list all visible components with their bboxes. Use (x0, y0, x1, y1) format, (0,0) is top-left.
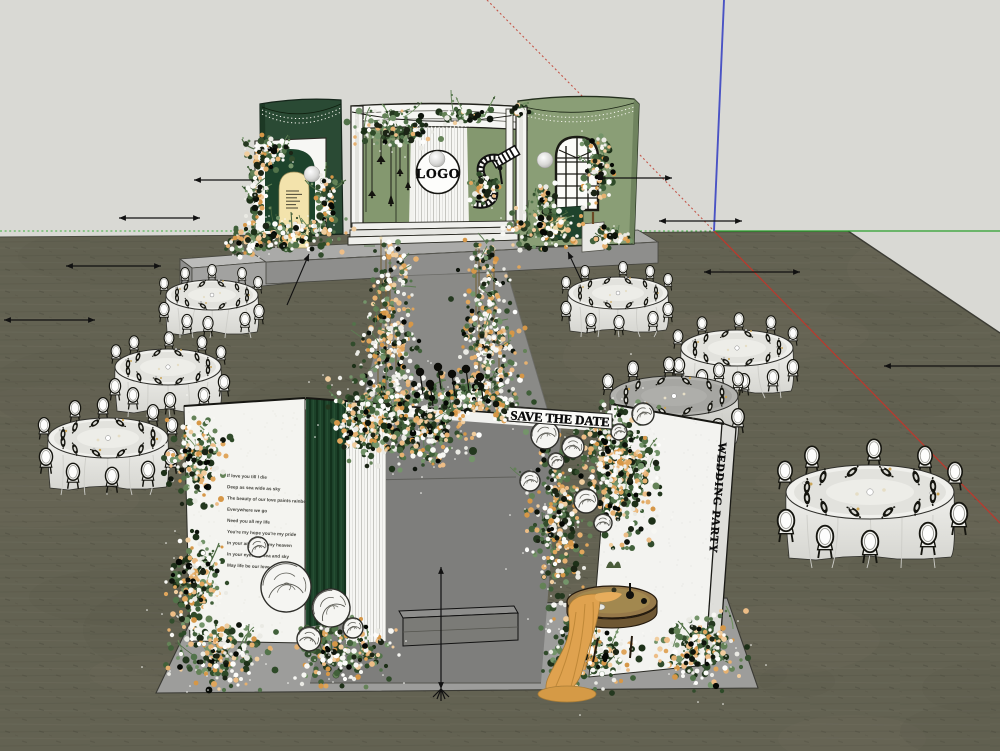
svg-text:LOGO: LOGO (416, 167, 460, 182)
